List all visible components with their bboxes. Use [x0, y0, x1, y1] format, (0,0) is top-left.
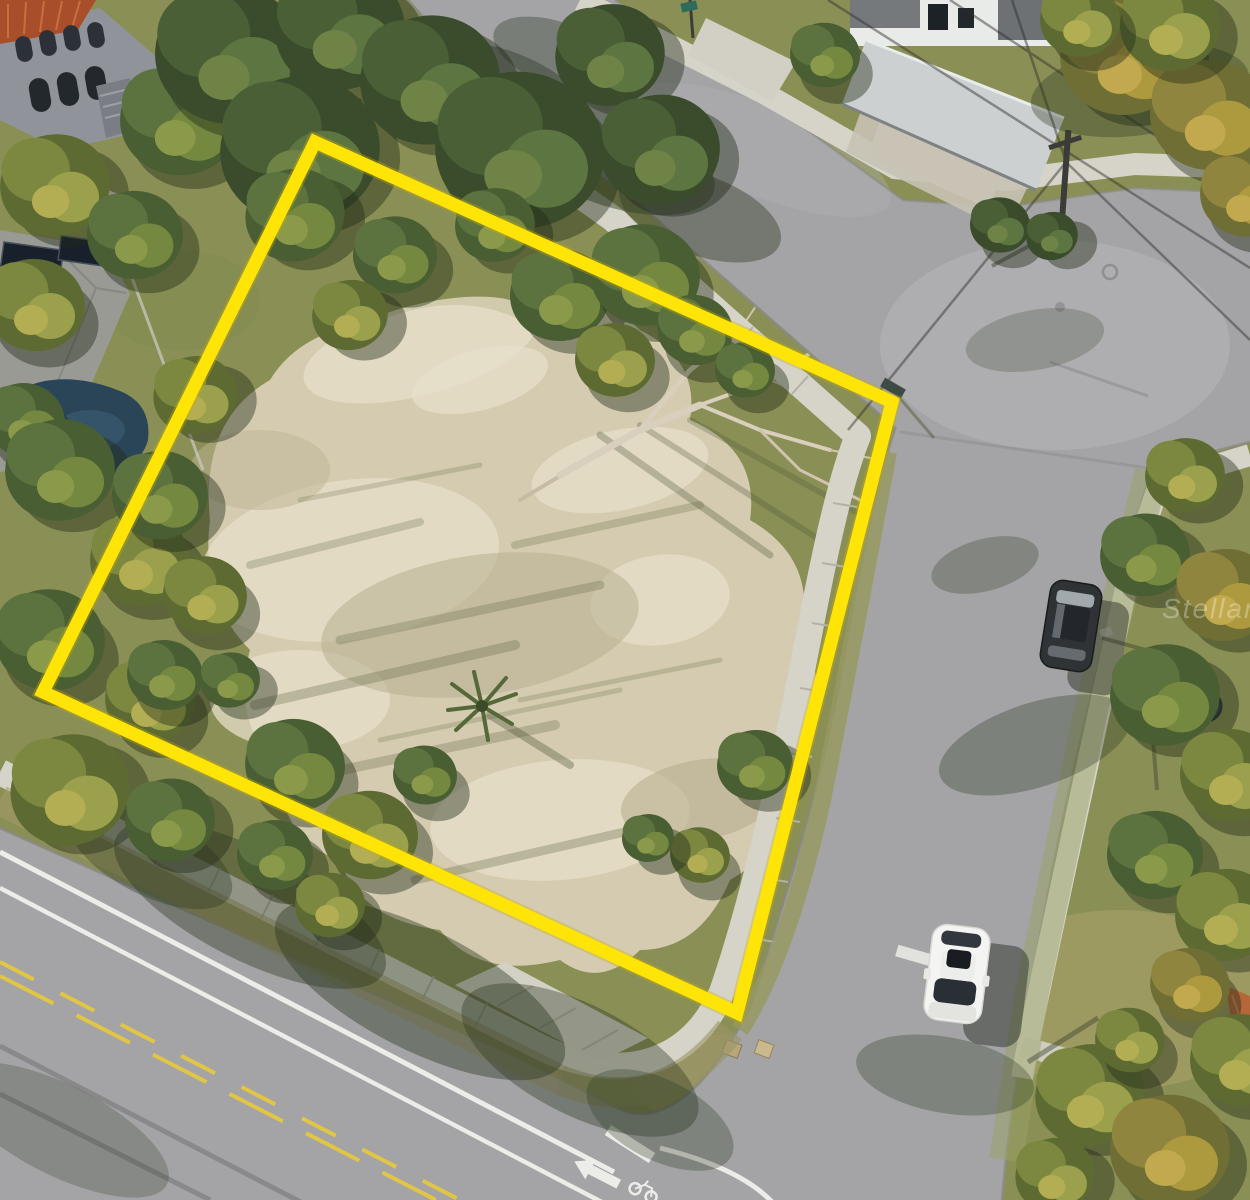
tree-highlight	[1041, 236, 1059, 252]
tree-highlight	[687, 855, 707, 873]
window-slot	[928, 4, 948, 30]
tree-highlight	[1038, 1175, 1065, 1199]
tree-highlight	[1142, 695, 1179, 728]
tree-highlight	[32, 185, 69, 218]
tree-highlight	[149, 675, 175, 698]
tree-highlight	[1063, 20, 1090, 44]
tree-highlight	[151, 820, 182, 847]
aerial-photo: StellarMLS	[0, 0, 1250, 1200]
tree-highlight	[259, 855, 285, 878]
tree-highlight	[119, 560, 153, 590]
tree-highlight	[1168, 475, 1195, 499]
tree-highlight	[987, 225, 1007, 243]
tree-highlight	[810, 55, 834, 76]
tree-highlight	[1173, 985, 1200, 1009]
sunroof	[946, 949, 972, 970]
mirror-left	[923, 968, 931, 980]
tree-highlight	[274, 765, 308, 795]
windshield	[933, 977, 978, 1006]
gray-roof-panel	[850, 0, 920, 28]
mirror-right	[982, 975, 990, 987]
tree-highlight	[739, 765, 765, 788]
tree-highlight	[37, 470, 74, 503]
tree-highlight	[598, 360, 625, 384]
tree-highlight	[412, 775, 434, 794]
tree-highlight	[679, 330, 705, 353]
tree-highlight	[315, 905, 339, 926]
tree-highlight	[115, 235, 148, 264]
tree-highlight	[45, 790, 86, 826]
tree-highlight	[539, 295, 573, 325]
tree-highlight	[155, 120, 196, 156]
tree-highlight	[732, 370, 752, 388]
tree-highlight	[313, 30, 357, 69]
tree-highlight	[637, 838, 655, 854]
tree-highlight	[635, 150, 676, 186]
tree-highlight	[1185, 115, 1226, 151]
tree-highlight	[1135, 855, 1168, 884]
tree-highlight	[187, 595, 216, 620]
tree-highlight	[1126, 555, 1157, 582]
tree-highlight	[1145, 1150, 1186, 1186]
tree-highlight	[1115, 1040, 1139, 1061]
tree-highlight	[1209, 775, 1243, 805]
tree-highlight	[1149, 25, 1183, 55]
tree-highlight	[217, 680, 237, 698]
tree-highlight	[587, 55, 624, 88]
tree-highlight	[1204, 915, 1238, 945]
tree-highlight	[1067, 1095, 1104, 1128]
tree-highlight	[377, 255, 406, 280]
tree-highlight	[14, 305, 48, 335]
watermark: StellarMLS	[1162, 593, 1250, 624]
tree-highlight	[334, 315, 360, 338]
